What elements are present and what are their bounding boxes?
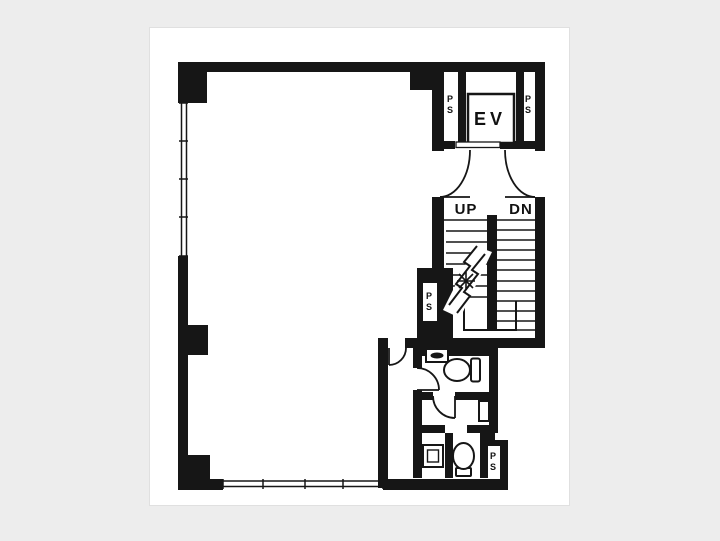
wall-top [178, 62, 545, 72]
floor-plan-drawing [0, 0, 720, 541]
wall-bottom-left [178, 479, 223, 490]
wall-bottom-right [383, 479, 508, 490]
break-star-icon [457, 272, 475, 290]
elevator-label: EV [468, 110, 512, 128]
pipe-shaft-label-stairs: PS [424, 285, 433, 319]
wall-ev-shaft-left [458, 72, 466, 143]
lower-sink-fixture [423, 445, 443, 467]
door-arc-hall-right [505, 150, 535, 197]
stairs-down-label: DN [503, 202, 539, 217]
wall-restroom-left [378, 338, 388, 488]
door-arc-urinal-room [433, 396, 455, 418]
wall-anteroom-divider-b [413, 390, 422, 478]
door-arc-hall-left [440, 150, 470, 197]
wall-row3-divider [445, 433, 453, 478]
elevator-door-sill [456, 142, 500, 148]
wall-ps-step [485, 428, 495, 442]
wall-ps-right [500, 440, 508, 488]
wall-row2-a [413, 425, 445, 433]
wall-annex-left-lower [432, 197, 444, 270]
wall-stair-bottom [453, 338, 545, 348]
wall-anteroom-top [405, 338, 443, 348]
wall-ev-sill-left [432, 141, 455, 149]
door-arc-anteroom [389, 348, 406, 365]
wall-annex-left-upper [432, 70, 444, 151]
pipe-shaft-label-elevator-left: PS [445, 88, 454, 122]
wall-annex-right-upper [535, 72, 545, 151]
wall-row1-b [455, 392, 498, 400]
wall-row1-a [413, 392, 433, 400]
wall-stair-spine [487, 215, 497, 330]
restrooms [389, 348, 489, 476]
pipe-shaft-label-elevator-right: PS [523, 88, 532, 122]
window-strip-left [179, 103, 188, 256]
wc-toilet-fixture [444, 359, 480, 382]
floor-plan-page: EV UP DN PS PS PS PS [0, 0, 720, 541]
pipe-shaft-label-restroom: PS [488, 447, 497, 476]
door-arc-wc [417, 368, 439, 390]
wall-annex-right-lower [535, 197, 545, 347]
stairs-up-label: UP [448, 202, 484, 217]
window-strip-bottom [223, 479, 383, 489]
elevator-hall [440, 150, 535, 197]
lower-toilet-fixture [453, 443, 474, 476]
wall-left-lower [178, 256, 188, 490]
urinal-fixture [479, 401, 489, 421]
wc-sink-fixture [426, 349, 448, 362]
wall-wc-right [489, 348, 498, 432]
wall-anteroom-divider-a [413, 348, 422, 368]
pier-mid-left [188, 325, 208, 355]
pier-top-left [178, 72, 207, 103]
